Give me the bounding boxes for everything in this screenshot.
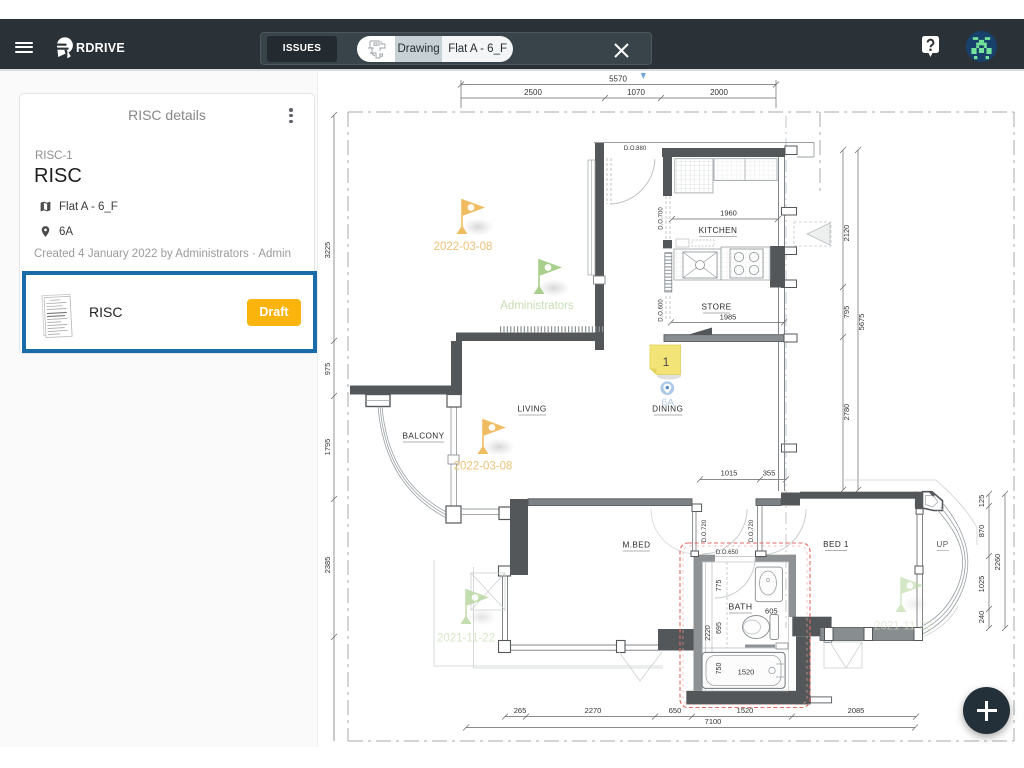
svg-text:5675: 5675 bbox=[857, 314, 866, 331]
svg-text:2120: 2120 bbox=[842, 225, 851, 242]
svg-text:1070: 1070 bbox=[627, 88, 645, 97]
svg-text:870: 870 bbox=[977, 525, 986, 538]
svg-text:650: 650 bbox=[669, 706, 682, 715]
svg-text:KITCHEN: KITCHEN bbox=[699, 226, 738, 235]
svg-text:1: 1 bbox=[663, 355, 670, 369]
svg-text:355: 355 bbox=[763, 469, 776, 478]
svg-text:2022-03-08: 2022-03-08 bbox=[434, 241, 493, 253]
svg-text:LIVING: LIVING bbox=[517, 405, 546, 414]
svg-text:2085: 2085 bbox=[848, 706, 865, 715]
svg-text:Administrators: Administrators bbox=[500, 300, 574, 312]
svg-text:BED 1: BED 1 bbox=[823, 540, 849, 549]
svg-text:975: 975 bbox=[323, 363, 332, 376]
svg-text:D.O.720: D.O.720 bbox=[702, 519, 708, 542]
svg-text:2220: 2220 bbox=[705, 625, 712, 641]
svg-text:D.O.720: D.O.720 bbox=[749, 519, 755, 542]
svg-text:1795: 1795 bbox=[323, 439, 332, 456]
svg-text:M.BED: M.BED bbox=[623, 541, 651, 550]
svg-text:7100: 7100 bbox=[705, 717, 722, 726]
svg-text:2000: 2000 bbox=[710, 88, 728, 97]
svg-text:BALCONY: BALCONY bbox=[403, 432, 445, 441]
svg-text:695: 695 bbox=[716, 622, 723, 634]
svg-text:2022-03-08: 2022-03-08 bbox=[454, 461, 513, 473]
svg-text:D.O.880: D.O.880 bbox=[624, 146, 647, 152]
svg-text:2780: 2780 bbox=[842, 404, 851, 421]
svg-text:2260: 2260 bbox=[993, 554, 1002, 571]
svg-text:BATH: BATH bbox=[729, 602, 753, 612]
svg-text:1960: 1960 bbox=[720, 209, 737, 218]
svg-text:125: 125 bbox=[977, 495, 986, 508]
svg-text:5570: 5570 bbox=[609, 75, 627, 84]
svg-text:D.O.650: D.O.650 bbox=[716, 550, 739, 556]
svg-text:605: 605 bbox=[765, 607, 778, 616]
svg-text:2500: 2500 bbox=[524, 88, 542, 97]
svg-text:2270: 2270 bbox=[585, 706, 602, 715]
svg-text:2021-11-22: 2021-11-22 bbox=[874, 621, 932, 633]
svg-text:1025: 1025 bbox=[977, 576, 986, 593]
svg-text:UP: UP bbox=[936, 540, 948, 549]
svg-text:795: 795 bbox=[842, 306, 851, 319]
svg-text:STORE: STORE bbox=[701, 303, 731, 312]
svg-text:D.O.700: D.O.700 bbox=[659, 207, 665, 230]
svg-text:2385: 2385 bbox=[323, 557, 332, 574]
svg-text:1015: 1015 bbox=[721, 469, 738, 478]
svg-text:265: 265 bbox=[514, 706, 527, 715]
svg-text:240: 240 bbox=[977, 611, 986, 624]
svg-text:775: 775 bbox=[716, 580, 723, 592]
svg-text:D.O.600: D.O.600 bbox=[659, 299, 665, 322]
svg-text:1520: 1520 bbox=[738, 668, 755, 677]
svg-text:3225: 3225 bbox=[323, 242, 332, 259]
svg-text:DINING: DINING bbox=[652, 405, 683, 414]
svg-text:2021-11-22: 2021-11-22 bbox=[437, 633, 495, 645]
svg-text:750: 750 bbox=[716, 663, 723, 675]
svg-text:1985: 1985 bbox=[720, 313, 737, 322]
